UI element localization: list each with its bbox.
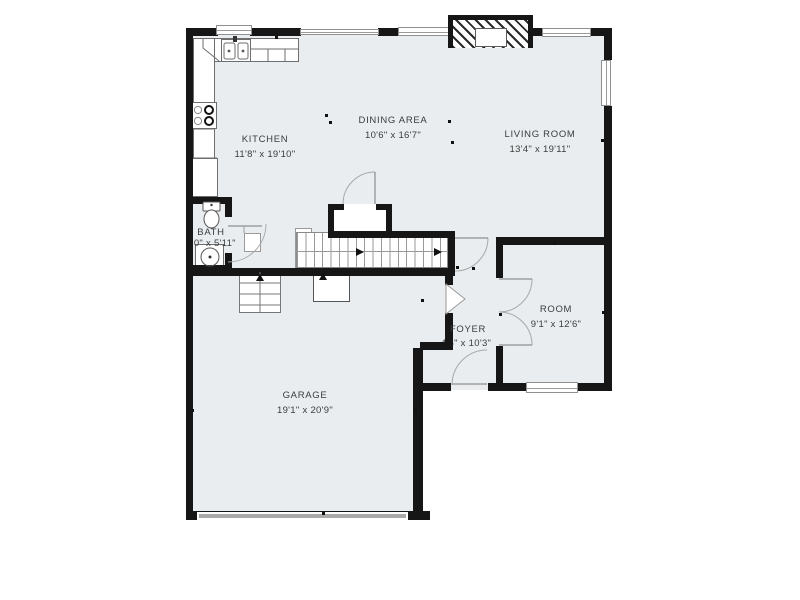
garage-label: GARAGE (283, 390, 328, 401)
tick (451, 141, 454, 144)
tick (275, 36, 278, 39)
foyer-label: FOYER (450, 324, 486, 335)
tick (499, 313, 502, 316)
french-doors (499, 279, 532, 345)
tick (456, 266, 459, 269)
front-door (452, 350, 487, 385)
bath-door (228, 224, 266, 262)
vanity-sink-bowl (201, 248, 219, 266)
tick (553, 242, 556, 245)
tick (448, 120, 451, 123)
living-dims: 13'4" x 19'11" (510, 144, 571, 155)
bath-label: BATH (197, 227, 224, 238)
tick (414, 409, 417, 412)
tick (472, 267, 475, 270)
tick (325, 114, 328, 117)
tick (191, 409, 194, 412)
garage-dims: 19'1" x 20'9" (277, 405, 333, 416)
stove-burners (194, 106, 213, 125)
dining-dims: 10'6" x 16'7" (365, 130, 421, 141)
closet-door (343, 172, 375, 204)
kitchen-label: KITCHEN (242, 134, 289, 145)
kitchen-dims: 11'8" x 19'10" (235, 149, 296, 160)
toilet (203, 202, 220, 228)
floor-plan: 5'0" x 5'11" 4'6" x 10'3" (0, 0, 800, 600)
living-label: LIVING ROOM (504, 129, 575, 140)
tick (329, 121, 332, 124)
room-dims: 9'1" x 12'6" (531, 319, 581, 330)
room-label: ROOM (540, 304, 572, 315)
tick (322, 512, 325, 515)
entry-opening-chevron (446, 284, 465, 314)
doors-and-fixtures-layer (0, 0, 800, 600)
tick (602, 311, 605, 314)
sink-basins (224, 36, 248, 59)
tick (421, 299, 424, 302)
tick (601, 139, 604, 142)
dining-label: DINING AREA (359, 115, 428, 126)
direction-arrows (256, 248, 442, 281)
